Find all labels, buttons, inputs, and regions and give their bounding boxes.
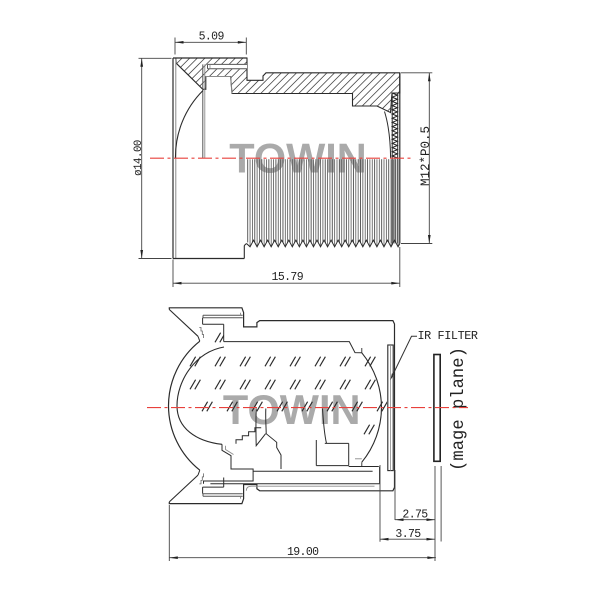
svg-text:5.09: 5.09 <box>199 31 225 44</box>
svg-text:19.00: 19.00 <box>287 546 319 559</box>
svg-text:2.75: 2.75 <box>402 508 428 521</box>
svg-text:M12*P0.5: M12*P0.5 <box>419 126 433 186</box>
svg-text:(mage plane): (mage plane) <box>450 347 469 471</box>
svg-text:3.75: 3.75 <box>395 528 421 541</box>
svg-text:TOWIN: TOWIN <box>223 386 361 433</box>
svg-text:ø14.00: ø14.00 <box>133 140 145 176</box>
svg-text:15.79: 15.79 <box>272 271 304 284</box>
svg-text:IR FILTER: IR FILTER <box>418 329 478 343</box>
